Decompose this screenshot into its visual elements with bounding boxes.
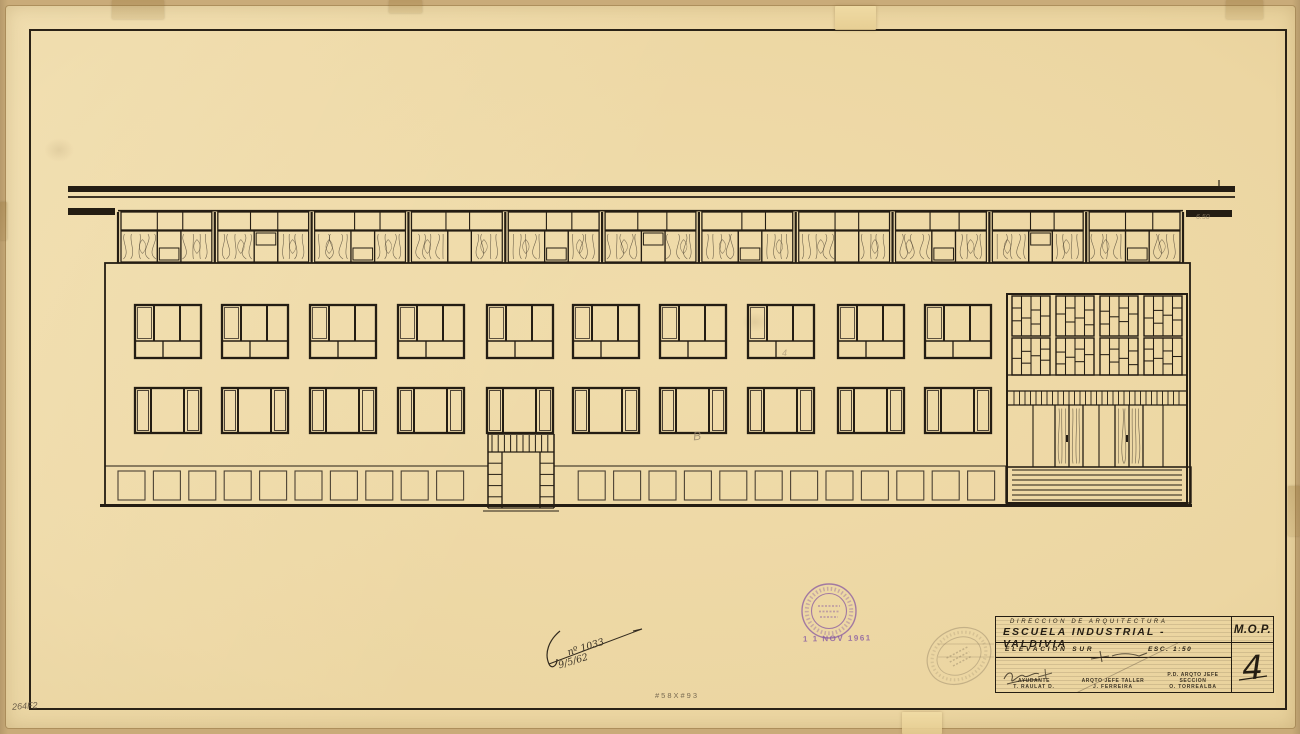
basement-window (118, 471, 145, 500)
grain-line (226, 234, 229, 259)
lower-window-casement (663, 391, 674, 431)
grain-line (960, 234, 962, 259)
clerestory-glass-panel (254, 231, 278, 262)
grain-line (520, 234, 522, 259)
view-row: ELEVACION SUR ESC. 1:50 (996, 643, 1231, 658)
upper-window (838, 305, 904, 358)
basement-window (366, 471, 393, 500)
grain-knot (776, 240, 782, 254)
faint-round-stamp (917, 617, 1001, 696)
stamp-center-text (953, 657, 971, 666)
clerestory-strip (508, 212, 599, 230)
wood-grain (802, 234, 834, 259)
grain-line (393, 234, 397, 259)
upper-window-casement (576, 308, 590, 339)
roof-fascia (68, 186, 1235, 192)
clerestory-glass-panel (157, 231, 181, 262)
clerestory-inset-pane (740, 248, 760, 260)
clerestory-inset-pane (547, 248, 567, 260)
wood-grain (861, 234, 885, 259)
lower-window (222, 388, 288, 433)
grain-line (713, 234, 714, 259)
grain-line (1058, 409, 1059, 464)
wood-grain (319, 234, 348, 259)
grain-line (1091, 234, 1095, 259)
grain-line (1076, 409, 1077, 464)
signatory-name: T. RAULAT D. (998, 684, 1070, 690)
clerestory-inset-pane (934, 248, 954, 260)
basement-window (295, 471, 322, 500)
lower-window-casement (451, 391, 462, 431)
grain-line (1024, 234, 1026, 259)
lower-window-casement (751, 391, 762, 431)
grain-line (123, 234, 126, 259)
lower-window (310, 388, 376, 433)
lower-window-casement (928, 391, 939, 431)
wood-grain (222, 234, 251, 259)
basement-window (932, 471, 959, 500)
clerestory-strip (315, 212, 406, 230)
grain-line (920, 234, 924, 259)
grain-line (319, 234, 320, 259)
clerestory-strip (992, 212, 1083, 230)
clerestory-strip (218, 212, 309, 230)
lower-window-casement (188, 391, 199, 431)
grain-line (677, 234, 680, 259)
clerestory-glass-panel (1126, 231, 1150, 262)
title-block-org-cell: M.O.P. 4 (1232, 617, 1273, 692)
clerestory-inset-pane (256, 233, 276, 245)
department-title: DIRECCION DE ARQUITECTURA (1010, 619, 1167, 625)
grain-line (1072, 409, 1073, 464)
grain-line (635, 234, 637, 259)
stamp-inner-ring (812, 594, 847, 629)
upper-window (487, 305, 553, 358)
wood-grain (573, 234, 595, 259)
wood-grain (1072, 409, 1080, 464)
signatory-role: P.D. ARQTO JEFE SECCION (1156, 672, 1230, 684)
grain-line (1017, 234, 1021, 259)
clerestory-wood-panel (278, 231, 309, 262)
lower-window (487, 388, 553, 433)
upper-window-casement (138, 308, 152, 339)
grain-line (399, 234, 401, 259)
upper-window (925, 305, 991, 358)
clerestory-inset-pane (159, 248, 179, 260)
grain-line (302, 234, 304, 259)
clerestory-strip (605, 212, 696, 230)
grain-line (222, 234, 225, 259)
grain-line (774, 234, 776, 259)
grain-line (573, 234, 574, 259)
wood-grain (997, 234, 1025, 259)
upper-window-casement (663, 308, 677, 339)
wood-grain (666, 234, 691, 259)
basement-window (684, 471, 711, 500)
basement-window (968, 471, 995, 500)
grain-line (1079, 409, 1080, 464)
clerestory-wood-panel (471, 231, 502, 262)
clerestory-strip (121, 212, 212, 230)
basement-window (826, 471, 853, 500)
door-handle (1066, 435, 1068, 442)
grain-line (1122, 409, 1124, 464)
lower-window-casement (713, 391, 724, 431)
clerestory-strip (411, 212, 502, 230)
grain-line (1062, 234, 1064, 259)
basement-window (330, 471, 357, 500)
grain-line (193, 234, 194, 259)
grain-knot (1004, 240, 1010, 254)
grain-line (235, 234, 236, 259)
clerestory-glass-panel (1029, 231, 1053, 262)
wood-grain (416, 234, 443, 259)
grain-line (1071, 234, 1072, 259)
lower-window-casement (626, 391, 637, 431)
grain-line (974, 234, 978, 259)
lower-window-casement (576, 391, 587, 431)
grain-line (607, 234, 610, 259)
clerestory-strip (799, 212, 890, 230)
wood-grain (378, 234, 401, 259)
grain-line (1138, 409, 1140, 464)
lower-window (838, 388, 904, 433)
grain-knot (1103, 240, 1109, 254)
upper-window-casement (490, 308, 504, 339)
grain-line (283, 234, 284, 259)
grain-line (620, 234, 624, 259)
lower-window-casement (891, 391, 902, 431)
grain-line (436, 234, 440, 259)
clerestory-inset-pane (1128, 248, 1148, 260)
grain-line (1056, 234, 1057, 259)
upper-window (310, 305, 376, 358)
upper-window (135, 305, 201, 358)
grain-line (980, 234, 982, 259)
wood-grain (1056, 234, 1078, 259)
org-label: M.O.P. (1232, 617, 1273, 643)
lower-window (573, 388, 639, 433)
stamp-outer-ring (802, 584, 856, 638)
grain-knot (621, 240, 627, 254)
wood-grain (1058, 409, 1066, 464)
upper-window-casement (841, 308, 855, 339)
basement-window (755, 471, 782, 500)
grain-line (720, 234, 722, 259)
wood-grain (1132, 409, 1140, 464)
basement-window (260, 471, 287, 500)
roof-soffit-right (1186, 210, 1232, 217)
clerestory-glass-panel (932, 231, 956, 262)
lower-window-casement (841, 391, 852, 431)
facade-outline (105, 263, 1190, 505)
clerestory-glass-panel (545, 231, 569, 262)
grain-line (883, 234, 885, 259)
grain-line (1106, 234, 1107, 259)
signature-row: AYUDANTET. RAULAT D.ARQTO JEFE TALLERJ. … (996, 658, 1231, 692)
grain-line (249, 234, 252, 259)
grain-line (730, 234, 734, 259)
wood-grain (513, 234, 540, 259)
clerestory-strip (702, 212, 793, 230)
clerestory-glass-panel (738, 231, 762, 262)
upper-window (222, 305, 288, 358)
ground-line (100, 504, 1192, 507)
ink-check-stroke (549, 629, 642, 664)
door-handle (1126, 435, 1128, 442)
title-block-main: DIRECCION DE ARQUITECTURA ESCUELA INDUST… (996, 617, 1232, 692)
upper-window (748, 305, 814, 358)
basement-window (578, 471, 605, 500)
grain-line (525, 234, 526, 259)
grain-line (182, 234, 186, 259)
stamp-outer-ring (917, 617, 1001, 696)
lower-window-casement (978, 391, 989, 431)
ink-check-stroke (547, 631, 560, 667)
wood-grain (900, 234, 930, 259)
grain-line (416, 234, 420, 259)
grain-line (823, 234, 827, 259)
grain-line (1125, 409, 1126, 464)
upper-window-casement (313, 308, 327, 339)
signatory-column: AYUDANTET. RAULAT D. (998, 678, 1070, 690)
clerestory-glass-panel (351, 231, 375, 262)
grain-line (496, 234, 498, 259)
grain-knot (1159, 240, 1165, 254)
stamp-center-text (947, 647, 968, 658)
wood-grain (607, 234, 637, 259)
grain-line (689, 234, 691, 259)
stamp-ring-text (807, 589, 852, 634)
grain-line (490, 234, 491, 259)
wood-grain (1154, 234, 1176, 259)
lower-window-casement (490, 391, 501, 431)
clerestory-wood-panel (955, 231, 986, 262)
sheet-number: 4 (1231, 641, 1275, 693)
basement-window (437, 471, 464, 500)
grain-knot (481, 240, 487, 254)
grain-line (378, 234, 380, 259)
upper-window (573, 305, 639, 358)
signatory-name: O. TORREALBA (1156, 684, 1230, 690)
grain-knot (194, 240, 200, 254)
grain-line (927, 234, 930, 259)
clerestory-inset-pane (353, 248, 373, 260)
clerestory-strip (896, 212, 987, 230)
title-block: DIRECCION DE ARQUITECTURA ESCUELA INDUST… (995, 616, 1274, 693)
lower-window-casement (401, 391, 412, 431)
grain-knot (968, 240, 974, 254)
basement-window (791, 471, 818, 500)
clerestory-wood-panel (181, 231, 212, 262)
lower-window (135, 388, 201, 433)
grain-line (580, 234, 585, 259)
clerestory-inset-pane (643, 233, 663, 245)
basement-window (649, 471, 676, 500)
grain-line (346, 234, 347, 259)
grain-line (1173, 234, 1175, 259)
grain-line (802, 234, 804, 259)
grain-line (767, 234, 768, 259)
basement-window (224, 471, 251, 500)
lower-window (925, 388, 991, 433)
stamp-ring-text (924, 623, 995, 689)
grain-line (629, 234, 633, 259)
grain-line (1166, 234, 1168, 259)
upper-window-casement (225, 308, 239, 339)
grain-line (476, 234, 479, 259)
clerestory-wood-panel (1149, 231, 1180, 262)
lower-window (398, 388, 464, 433)
lower-window (748, 388, 814, 433)
grain-line (786, 234, 788, 259)
signatory-column: ARQTO JEFE TALLERJ. FERREIRA (1072, 678, 1154, 690)
grain-line (830, 234, 834, 259)
grain-line (617, 234, 618, 259)
clerestory-glass-panel (448, 231, 472, 262)
grain-line (1154, 234, 1158, 259)
upper-window-casement (401, 308, 415, 339)
clerestory-glass-panel (835, 231, 859, 262)
upper-window-casement (928, 308, 942, 339)
grain-line (808, 234, 810, 259)
wood-grain (1118, 409, 1126, 464)
wood-grain (960, 234, 981, 259)
lower-window-casement (363, 391, 374, 431)
view-label: ELEVACION SUR (1005, 646, 1094, 653)
basement-window (189, 471, 216, 500)
clerestory-wood-panel (762, 231, 793, 262)
grain-line (666, 234, 671, 259)
grain-line (726, 234, 730, 259)
basement-window (614, 471, 641, 500)
clerestory-glass-panel (641, 231, 665, 262)
title-row: DIRECCION DE ARQUITECTURA ESCUELA INDUST… (996, 617, 1231, 643)
upper-window (660, 305, 726, 358)
wood-grain (283, 234, 304, 259)
grain-line (339, 234, 343, 259)
grain-line (781, 234, 782, 259)
clerestory-strip (1089, 212, 1180, 230)
clerestory-inset-pane (1031, 233, 1051, 245)
basement-window (861, 471, 888, 500)
lower-window-casement (138, 391, 149, 431)
wood-grain (706, 234, 733, 259)
wood-grain (182, 234, 207, 259)
lower-window-casement (225, 391, 236, 431)
grain-line (1077, 234, 1079, 259)
lower-window-casement (313, 391, 324, 431)
basement-window (153, 471, 180, 500)
grain-line (1114, 234, 1118, 259)
upper-window (398, 305, 464, 358)
grain-line (1135, 409, 1136, 464)
grain-line (131, 234, 133, 259)
grain-line (539, 234, 540, 259)
upper-window-casement (751, 308, 765, 339)
grain-line (1100, 234, 1103, 259)
basement-window (720, 471, 747, 500)
signatory-column: P.D. ARQTO JEFE SECCIONO. TORREALBA (1156, 672, 1230, 690)
lower-window-casement (801, 391, 812, 431)
grain-line (592, 234, 594, 259)
grain-line (1121, 234, 1122, 259)
scale-label: ESC. 1:50 (1148, 646, 1192, 653)
grain-line (871, 234, 872, 259)
basement-window (401, 471, 428, 500)
grain-line (816, 234, 817, 259)
grain-line (533, 234, 537, 259)
lower-window-casement (540, 391, 551, 431)
round-purple-stamp (802, 584, 856, 638)
grain-line (152, 234, 156, 259)
basement-window (897, 471, 924, 500)
grain-line (900, 234, 904, 259)
grain-line (861, 234, 864, 259)
lower-window-casement (275, 391, 286, 431)
grain-line (876, 234, 878, 259)
grain-line (706, 234, 708, 259)
wood-grain (476, 234, 498, 259)
scanned-drawing-sheet: 6.50 B 4 nº 1033 9/5/62 1 1 NOV 1961 #58… (0, 0, 1300, 734)
lower-window (660, 388, 726, 433)
signatory-name: J. FERREIRA (1072, 684, 1154, 690)
entrance-frame (1007, 294, 1187, 503)
roof-soffit-left (68, 208, 115, 215)
wood-grain (123, 234, 156, 259)
wood-grain (1091, 234, 1121, 259)
wood-grain (767, 234, 788, 259)
grain-line (585, 234, 587, 259)
grain-line (205, 234, 207, 259)
